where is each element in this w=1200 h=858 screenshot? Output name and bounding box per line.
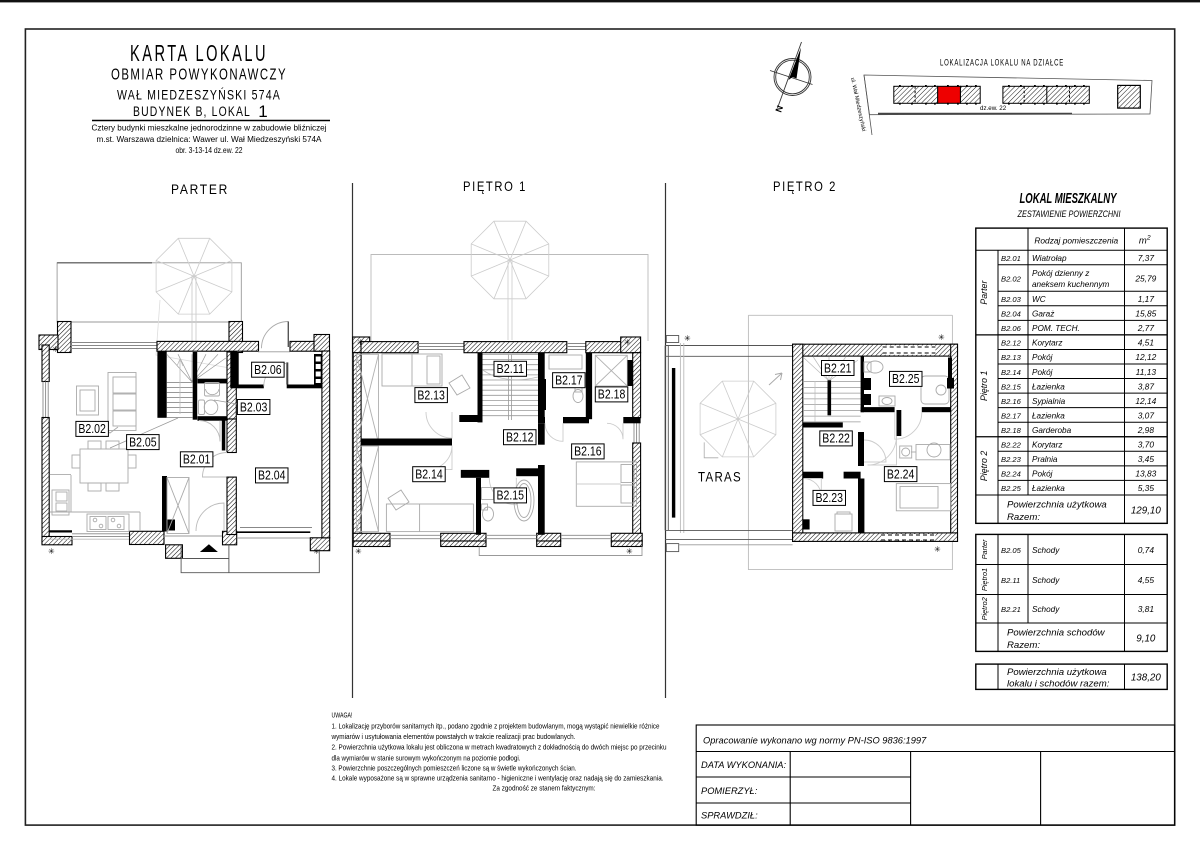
svg-text:PIĘTRO 1: PIĘTRO 1	[463, 178, 527, 194]
svg-text:B2.17: B2.17	[555, 374, 583, 388]
svg-text:Piętro 1: Piętro 1	[979, 371, 989, 401]
svg-text:Pokój: Pokój	[1032, 470, 1053, 479]
svg-text:13,83: 13,83	[1135, 469, 1156, 479]
svg-text:7,37: 7,37	[1138, 253, 1155, 263]
svg-text:DATA WYKONANIA:: DATA WYKONANIA:	[701, 760, 786, 770]
svg-text:B2.21: B2.21	[1001, 605, 1021, 614]
svg-text:Parter: Parter	[979, 280, 989, 305]
svg-text:Sypialnia: Sypialnia	[1032, 397, 1066, 406]
svg-text:B2.21: B2.21	[824, 361, 852, 375]
svg-text:11,13: 11,13	[1136, 367, 1157, 377]
svg-text:3,87: 3,87	[1138, 381, 1155, 391]
svg-text:TARAS: TARAS	[698, 470, 742, 485]
svg-text:B2.14: B2.14	[1001, 368, 1021, 377]
svg-text:B2.12: B2.12	[1001, 339, 1022, 348]
svg-text:✳: ✳	[52, 345, 59, 354]
svg-text:Pokój: Pokój	[1032, 353, 1053, 362]
svg-text:lokalu i schodów razem:: lokalu i schodów razem:	[1007, 678, 1110, 689]
svg-text:LOKALIZACJA LOKALU NA DZIAŁCE: LOKALIZACJA LOKALU NA DZIAŁCE	[940, 58, 1064, 69]
svg-text:Korytarz: Korytarz	[1032, 339, 1062, 348]
svg-text:Cztery budynki mieszkalne jedn: Cztery budynki mieszkalne jednorodzinne …	[92, 124, 327, 133]
svg-text:1. Lokalizację przyborów sanit: 1. Lokalizację przyborów sanitarnych itp…	[332, 722, 660, 731]
svg-text:B2.12: B2.12	[506, 431, 534, 445]
svg-text:OBMIAR POWYKONAWCZY: OBMIAR POWYKONAWCZY	[111, 67, 287, 84]
svg-text:KARTA LOKALU: KARTA LOKALU	[130, 40, 268, 66]
svg-text:Korytarz: Korytarz	[1032, 441, 1062, 450]
svg-text:5,35: 5,35	[1138, 483, 1155, 493]
svg-text:Za zgodność ze stanem faktyczn: Za zgodność ze stanem faktycznym:	[493, 784, 596, 793]
svg-text:✳: ✳	[624, 338, 631, 347]
svg-text:4,51: 4,51	[1138, 338, 1154, 348]
svg-text:✳: ✳	[684, 334, 691, 343]
svg-text:Piętro2: Piętro2	[980, 597, 989, 620]
svg-text:B2.03: B2.03	[240, 400, 268, 414]
svg-text:✳: ✳	[938, 333, 945, 342]
svg-text:B2.18: B2.18	[598, 388, 626, 402]
svg-text:B2.01: B2.01	[183, 453, 211, 467]
svg-text:PARTER: PARTER	[171, 181, 229, 197]
svg-text:15,85: 15,85	[1135, 309, 1156, 319]
svg-text:aneksem kuchennym: aneksem kuchennym	[1032, 280, 1110, 289]
svg-text:B2.23: B2.23	[816, 491, 844, 505]
svg-text:POMIERZYŁ:: POMIERZYŁ:	[701, 786, 758, 796]
svg-text:3,81: 3,81	[1138, 604, 1154, 614]
svg-text:Razem:: Razem:	[1007, 640, 1040, 651]
svg-text:Powierzchnia użytkowa: Powierzchnia użytkowa	[1007, 667, 1107, 678]
svg-text:Wiatrołap: Wiatrołap	[1032, 254, 1067, 263]
svg-text:B2.22: B2.22	[1001, 441, 1022, 450]
svg-text:POM. TECH.: POM. TECH.	[1032, 324, 1080, 333]
svg-text:Schody: Schody	[1032, 546, 1060, 555]
svg-text:B2.05: B2.05	[129, 435, 157, 449]
svg-text:m.st. Warszawa dzielnica: Wawe: m.st. Warszawa dzielnica: Wawer ul. Wał …	[97, 135, 323, 144]
svg-text:4. Lokale wyposażone są w spra: 4. Lokale wyposażone są w sprawne urządz…	[332, 774, 664, 783]
svg-text:✳: ✳	[934, 545, 941, 554]
svg-text:obr. 3-13-14 dz.ew. 22: obr. 3-13-14 dz.ew. 22	[176, 146, 243, 155]
svg-text:Piętro 2: Piętro 2	[979, 451, 989, 481]
svg-text:Razem:: Razem:	[1007, 512, 1040, 523]
svg-text:✳: ✳	[355, 547, 362, 556]
svg-text:Opracowanie wykonano wg normy: Opracowanie wykonano wg normy PN-ISO 983…	[703, 736, 927, 746]
svg-text:9,10: 9,10	[1136, 634, 1156, 645]
svg-text:3,70: 3,70	[1138, 440, 1155, 450]
svg-text:138,20: 138,20	[1131, 673, 1162, 684]
svg-text:Piętro1: Piętro1	[980, 568, 989, 591]
svg-text:2,98: 2,98	[1137, 425, 1155, 435]
svg-text:Powierzchnia użytkowa: Powierzchnia użytkowa	[1007, 499, 1107, 510]
svg-text:Parter: Parter	[980, 539, 989, 559]
svg-text:B2.06: B2.06	[1001, 324, 1022, 333]
svg-text:Pokój: Pokój	[1032, 368, 1053, 377]
svg-text:4,55: 4,55	[1138, 575, 1155, 585]
svg-text:B2.16: B2.16	[574, 445, 602, 459]
svg-text:25,79: 25,79	[1134, 274, 1156, 284]
svg-text:B2.24: B2.24	[1001, 470, 1021, 479]
svg-text:B2.04: B2.04	[258, 469, 286, 483]
svg-text:dla wymiarów w stanie surowym: dla wymiarów w stanie surowym wykończony…	[332, 754, 521, 763]
svg-text:1,17: 1,17	[1138, 294, 1155, 304]
svg-text:1: 1	[258, 102, 267, 121]
svg-text:Łazienka: Łazienka	[1032, 411, 1065, 420]
svg-text:UWAGA!: UWAGA!	[332, 711, 353, 720]
svg-text:2,77: 2,77	[1137, 323, 1155, 333]
svg-text:B2.13: B2.13	[417, 388, 445, 402]
svg-text:B2.23: B2.23	[1001, 455, 1022, 464]
svg-text:B2.17: B2.17	[1001, 411, 1022, 420]
svg-text:B2.24: B2.24	[887, 467, 915, 481]
svg-text:B2.05: B2.05	[1001, 546, 1022, 555]
svg-text:PIĘTRO 2: PIĘTRO 2	[773, 178, 837, 194]
svg-text:Schody: Schody	[1032, 576, 1060, 585]
svg-text:Rodzaj pomieszczenia: Rodzaj pomieszczenia	[1034, 235, 1118, 245]
svg-text:Łazienka: Łazienka	[1032, 484, 1065, 493]
svg-text:B2.25: B2.25	[892, 372, 920, 386]
svg-text:m: m	[1139, 235, 1147, 246]
svg-text:Schody: Schody	[1032, 605, 1060, 614]
svg-text:B2.02: B2.02	[1001, 274, 1022, 283]
svg-text:SPRAWDZIŁ:: SPRAWDZIŁ:	[701, 811, 758, 821]
svg-text:Garaż: Garaż	[1032, 310, 1054, 319]
svg-text:3. Powierzchnie poszczególnych: 3. Powierzchnie poszczególnych pomieszcz…	[332, 764, 577, 773]
svg-text:wymiarów i usytułowania elemen: wymiarów i usytułowania elementów powsta…	[331, 732, 576, 741]
svg-text:✳: ✳	[48, 547, 55, 556]
svg-text:12,14: 12,14	[1135, 396, 1156, 406]
svg-text:2. Powierzchnia użytkowa lokal: 2. Powierzchnia użytkowa lokalu jest obl…	[332, 743, 667, 752]
svg-text:B2.13: B2.13	[1001, 353, 1022, 362]
svg-text:✳: ✳	[357, 338, 364, 347]
svg-text:B2.06: B2.06	[254, 363, 282, 377]
svg-text:B2.11: B2.11	[497, 362, 525, 376]
svg-text:3,07: 3,07	[1138, 410, 1155, 420]
svg-text:B2.11: B2.11	[1001, 576, 1020, 585]
svg-text:B2.14: B2.14	[415, 468, 443, 482]
svg-text:B2.01: B2.01	[1001, 254, 1021, 263]
svg-text:✳: ✳	[313, 547, 320, 556]
svg-text:B2.18: B2.18	[1001, 426, 1022, 435]
svg-text:B2.15: B2.15	[1001, 382, 1022, 391]
svg-text:ZESTAWIENIE POWIERZCHNI: ZESTAWIENIE POWIERZCHNI	[1017, 209, 1121, 219]
svg-text:WAŁ MIEDZESZYŃSKI 574A: WAŁ MIEDZESZYŃSKI 574A	[117, 88, 281, 103]
svg-text:B2.03: B2.03	[1001, 295, 1022, 304]
svg-text:Garderoba: Garderoba	[1032, 426, 1072, 435]
svg-text:WC: WC	[1032, 295, 1046, 304]
svg-text:Łazienka: Łazienka	[1032, 382, 1065, 391]
svg-text:Pokój dzienny z: Pokój dzienny z	[1032, 269, 1089, 278]
svg-text:✳: ✳	[626, 547, 633, 556]
svg-text:0,74: 0,74	[1138, 545, 1155, 555]
svg-text:B2.15: B2.15	[497, 489, 525, 503]
svg-text:12,12: 12,12	[1135, 352, 1156, 362]
svg-text:129,10: 129,10	[1131, 505, 1162, 516]
svg-text:Pralnia: Pralnia	[1032, 455, 1058, 464]
svg-text:Powierzchnia schodów: Powierzchnia schodów	[1007, 628, 1106, 639]
svg-text:B2.22: B2.22	[822, 432, 850, 446]
svg-text:B2.25: B2.25	[1001, 484, 1022, 493]
svg-text:B2.16: B2.16	[1001, 397, 1022, 406]
svg-text:3,45: 3,45	[1138, 454, 1155, 464]
svg-text:2: 2	[1146, 235, 1151, 242]
svg-text:B2.02: B2.02	[78, 422, 106, 436]
svg-text:LOKAL MIESZKALNY: LOKAL MIESZKALNY	[1020, 191, 1118, 207]
svg-text:B2.04: B2.04	[1001, 310, 1021, 319]
svg-text:BUDYNEK B, LOKAL: BUDYNEK B, LOKAL	[133, 104, 251, 119]
svg-text:dz.ew. 22: dz.ew. 22	[980, 105, 1007, 112]
